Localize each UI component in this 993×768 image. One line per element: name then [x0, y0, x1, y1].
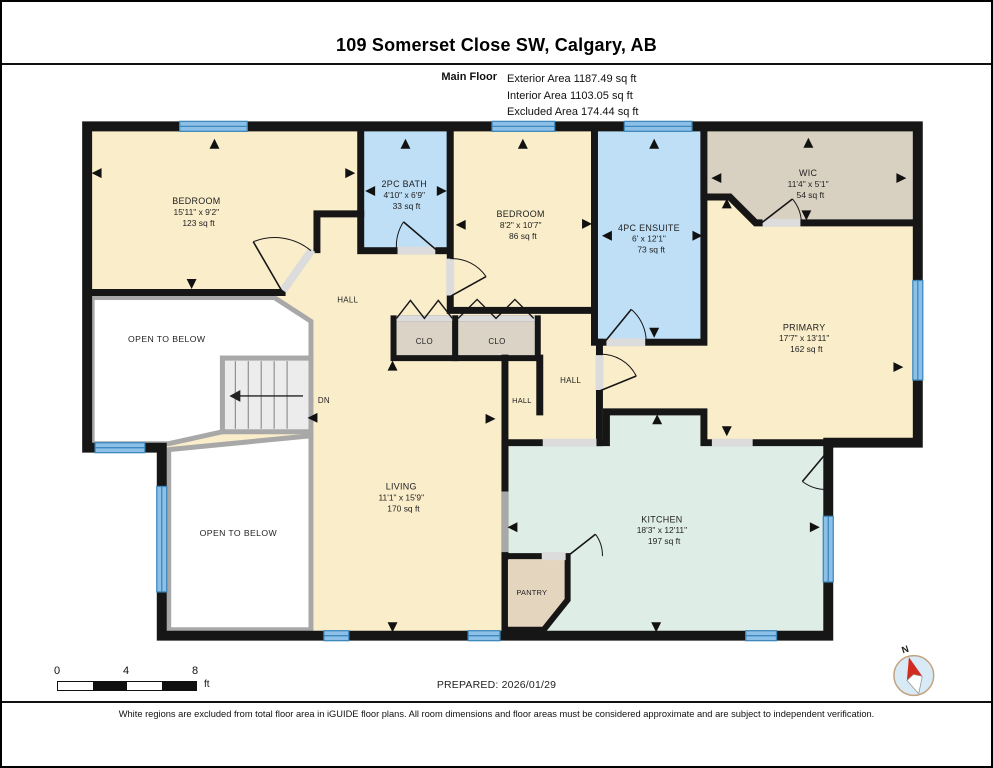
- pantry-label: PANTRY: [516, 588, 547, 597]
- exterior-area: Exterior Area 1187.49 sq ft: [507, 71, 638, 88]
- staircase: [222, 358, 311, 432]
- header-divider: [2, 63, 991, 65]
- area-summary: Exterior Area 1187.49 sq ft Interior Are…: [507, 71, 638, 121]
- hall-label-1: HALL: [337, 295, 358, 304]
- hall-label-3: HALL: [560, 376, 581, 385]
- floorplan-page: BEDROOM 15'11" x 9'2" 123 sq ft 2PC BATH…: [0, 0, 993, 768]
- open-to-below-label-2: OPEN TO BELOW: [200, 528, 278, 538]
- closet-label-2: CLO: [488, 337, 505, 346]
- prepared-date: PREPARED: 2026/01/29: [2, 679, 991, 691]
- excluded-area: Excluded Area 174.44 sq ft: [507, 104, 638, 121]
- open-to-below-label-1: OPEN TO BELOW: [128, 334, 206, 344]
- page-title: 109 Somerset Close SW, Calgary, AB: [2, 35, 991, 56]
- dn-label: DN: [318, 396, 330, 405]
- hall-label-2: HALL: [512, 396, 531, 405]
- scale-tick-4: 4: [123, 665, 129, 677]
- disclaimer-text: White regions are excluded from total fl…: [2, 709, 991, 719]
- scale-tick-0: 0: [54, 665, 60, 677]
- scale-tick-8: 8: [192, 665, 198, 677]
- interior-area: Interior Area 1103.05 sq ft: [507, 88, 638, 105]
- open-to-below-areas: [92, 297, 311, 629]
- floor-plan: BEDROOM 15'11" x 9'2" 123 sq ft 2PC BATH…: [2, 2, 991, 766]
- floor-label: Main Floor: [2, 71, 497, 83]
- footer-divider: [2, 701, 991, 703]
- closet-label-1: CLO: [416, 337, 433, 346]
- north-label: N: [900, 644, 910, 657]
